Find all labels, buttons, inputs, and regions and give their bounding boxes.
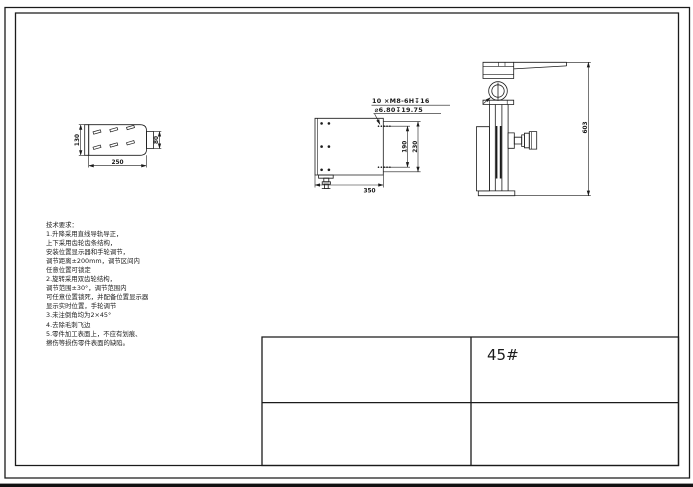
dim-250: 250: [89, 155, 147, 167]
base-plate: [478, 191, 515, 196]
column: [489, 105, 508, 191]
dim-230-label: 230: [413, 141, 419, 153]
mount-plate-edge: [477, 127, 490, 191]
title-block: 45#: [262, 337, 679, 466]
tech-req-line: 擦伤等损伤零件表面的缺陷。: [46, 339, 216, 348]
dim-130-label: 130: [75, 134, 81, 146]
dim-80: 80: [154, 132, 162, 149]
dim-190-label: 190: [402, 141, 408, 153]
side-boss: [147, 132, 154, 149]
hand-knob: [508, 132, 537, 150]
dim-603-label: 603: [583, 121, 589, 133]
dim-190: 190: [383, 126, 410, 167]
tech-req-line: 3.未注倒角均为2×45°: [46, 311, 216, 320]
plan-view: 10 ×M8-6H↧16 ⌀6.80↧19.75 190 230: [315, 97, 450, 194]
side-view: 603: [477, 62, 591, 195]
tech-req-line: 4.去除毛刺飞边: [46, 321, 216, 330]
tech-req-line: 5.零件加工表面上，不应有划痕、: [46, 330, 216, 339]
dim-80-label: 80: [154, 136, 160, 144]
clamp-bracket: [319, 175, 334, 189]
flange: [483, 100, 514, 104]
left-view: 130 250 80: [75, 125, 162, 168]
dim-350-label: 350: [363, 189, 375, 195]
top-arm: [483, 62, 567, 78]
tech-req-line: 1.升降采用直线导轨导正，: [46, 230, 216, 239]
tech-req-title: 技术要求：: [46, 221, 216, 230]
technical-requirements: 技术要求： 1.升降采用直线导轨导正， 上下采用齿轮齿条结构， 安装位置显示器和…: [46, 221, 216, 348]
tech-req-line: 调节距离±200mm，调节区间内: [46, 257, 216, 266]
dim-250-label: 250: [111, 160, 123, 166]
thread-hole-rows: [378, 125, 391, 168]
slot-pattern: [93, 125, 134, 149]
dim-603: 603: [515, 62, 591, 195]
dim-130: 130: [75, 125, 85, 156]
cad-sheet: 130 250 80: [0, 0, 693, 487]
thread-callout-line1: 10 ×M8-6H↧16: [372, 97, 430, 105]
tech-req-line: 2.旋转采用双齿轮结构，: [46, 275, 216, 284]
scan-edge-bar: [0, 484, 693, 487]
bolt-holes: [320, 122, 330, 171]
tech-req-line: 上下采用齿轮齿条结构，: [46, 239, 216, 248]
material-label: 45#: [487, 346, 519, 364]
tech-req-line: 任意位置可锁定: [46, 266, 216, 275]
tech-req-line: 安装位置显示器和手轮调节，: [46, 248, 216, 257]
thread-callout-line2: ⌀6.80↧19.75: [375, 106, 423, 114]
